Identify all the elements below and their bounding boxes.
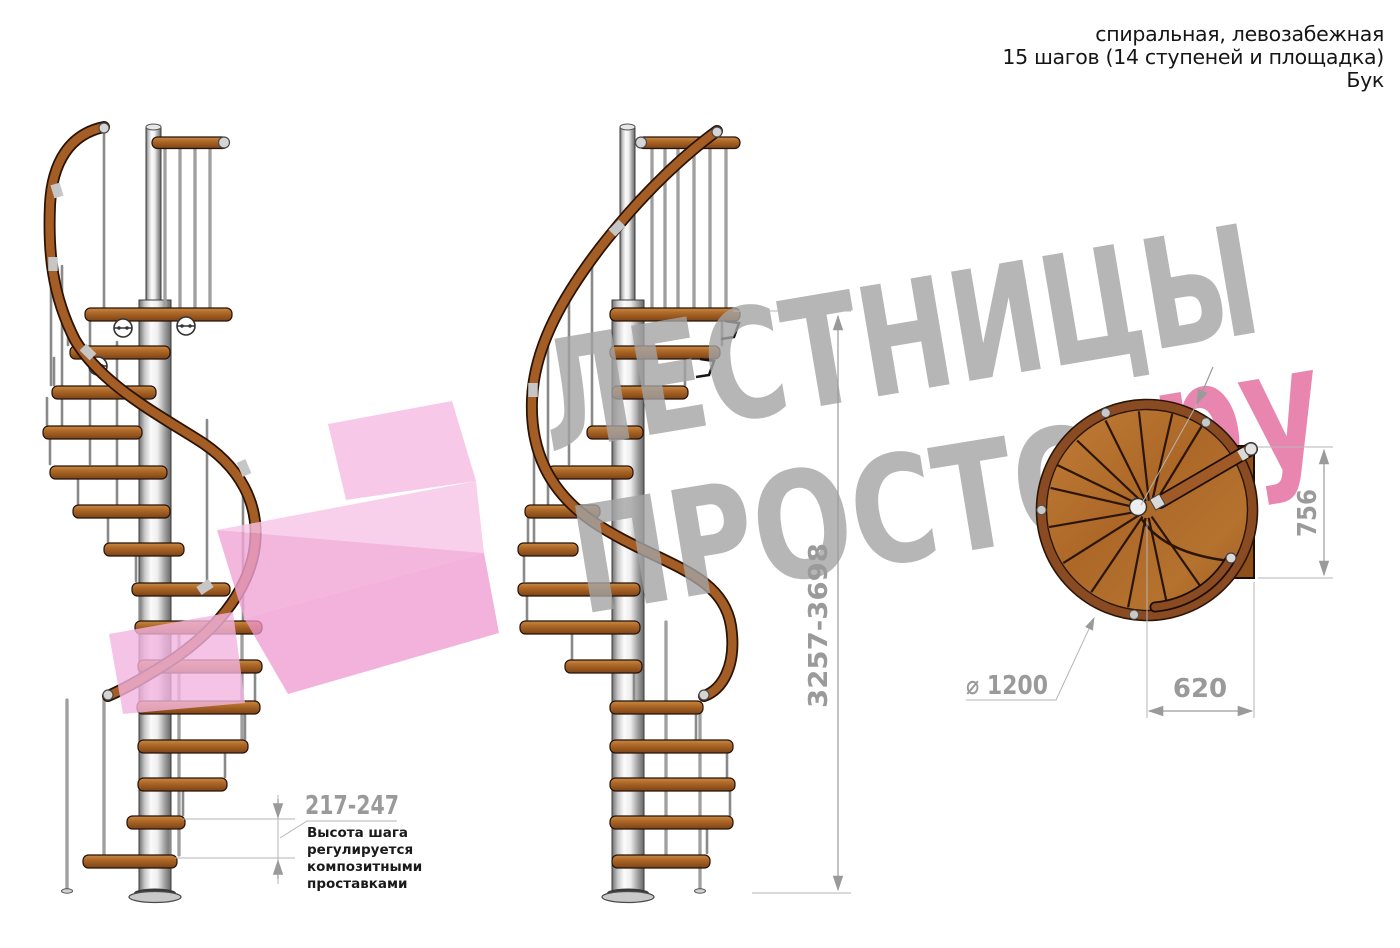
step-height-note: Высота шага регулируется композитными пр… xyxy=(307,825,422,892)
dimension-landing-width: 620 xyxy=(1173,674,1227,704)
handrail-end-cap xyxy=(1245,443,1257,455)
center-pole-hub xyxy=(1130,499,1147,516)
dimension-landing-depth: 756 xyxy=(1293,489,1323,537)
dimension-step-height: 217-247 xyxy=(305,791,399,821)
note-line-1: Высота шага xyxy=(307,825,408,841)
steps-front xyxy=(43,308,262,868)
note-line-2: регулируется xyxy=(307,842,413,858)
technical-drawing-page: ЛЕСТНИЦЫ ПРОСТО .ру xyxy=(0,0,1400,948)
dimension-diameter: ⌀ 1200 xyxy=(966,671,1048,701)
note-line-4: проставками xyxy=(307,876,408,892)
side-view-front xyxy=(43,123,262,903)
note-line-3: композитными xyxy=(307,859,422,875)
spiral-staircase-drawing: ЛЕСТНИЦЫ ПРОСТО .ру xyxy=(0,0,1400,948)
title-block: спиральная, левозабежная 15 шагов (14 ст… xyxy=(1002,22,1384,92)
title-line-steps: 15 шагов (14 ступеней и площадка) xyxy=(1002,45,1384,69)
title-line-type: спиральная, левозабежная xyxy=(1095,22,1384,46)
dimension-total-height: 3257-3698 xyxy=(804,543,834,708)
title-line-material: Бук xyxy=(1346,68,1384,92)
